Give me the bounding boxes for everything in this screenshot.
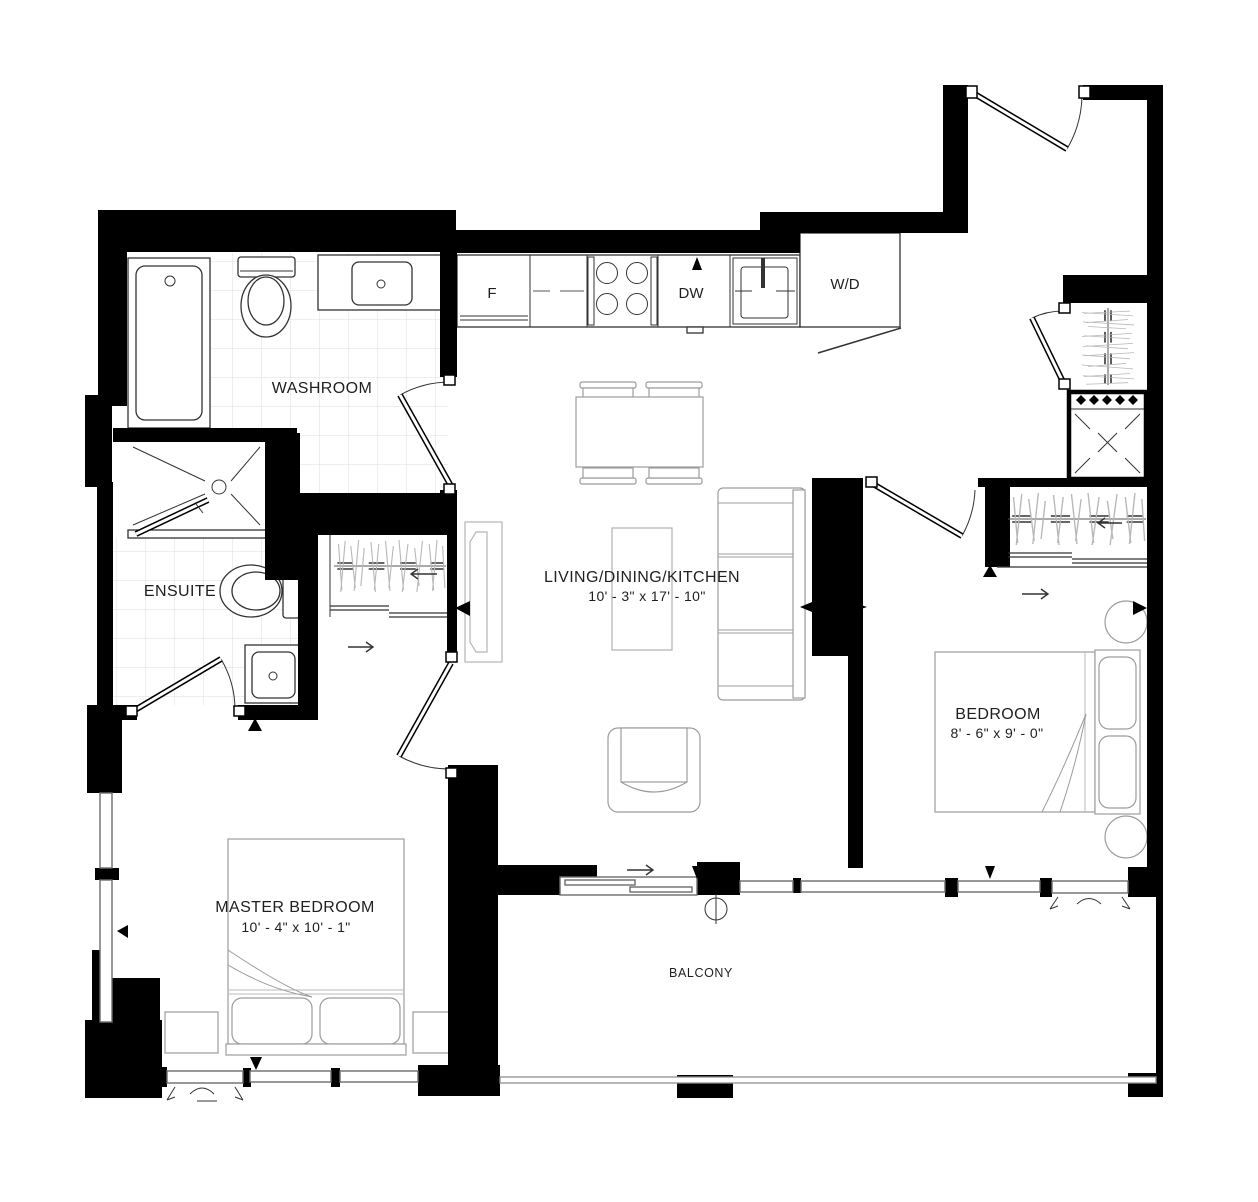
washroom-toilet bbox=[238, 257, 295, 337]
bedroom-dimensions: 8' - 6" x 9' - 0" bbox=[951, 725, 1044, 741]
washer-dryer-label: W/D bbox=[830, 276, 859, 293]
balcony-sliding-door bbox=[560, 877, 697, 895]
balcony-label: BALCONY bbox=[669, 966, 733, 980]
floor-plan-page: WASHROOM ENSUITE LIVING/DINING/KITCHEN 1… bbox=[0, 0, 1258, 1202]
floor-plan: WASHROOM ENSUITE LIVING/DINING/KITCHEN 1… bbox=[0, 0, 1258, 1202]
entry-coat-closet bbox=[1082, 308, 1134, 385]
direction-arrow bbox=[627, 865, 653, 875]
master-side-table-left bbox=[165, 1012, 218, 1053]
bathtub bbox=[128, 258, 210, 428]
shower bbox=[128, 442, 266, 538]
master-bed bbox=[226, 839, 406, 1055]
entry-door bbox=[966, 86, 1090, 149]
washroom-label: WASHROOM bbox=[272, 380, 372, 397]
direction-arrow bbox=[411, 569, 437, 579]
ensuite-sink bbox=[245, 645, 302, 703]
dishwasher bbox=[687, 327, 703, 333]
living-label: LIVING/DINING/KITCHEN bbox=[544, 569, 740, 586]
master-dimensions: 10' - 4" x 10' - 1" bbox=[241, 919, 350, 935]
master-closet bbox=[330, 535, 447, 617]
bedroom-label: BEDROOM bbox=[955, 706, 1040, 723]
direction-arrow bbox=[1022, 589, 1048, 599]
fridge-label: F bbox=[487, 285, 496, 302]
washer-dryer-closet bbox=[800, 233, 901, 353]
living-dimensions: 10' - 3" x 17' - 10" bbox=[588, 588, 705, 604]
balcony-railing bbox=[500, 1077, 1156, 1083]
direction-arrow bbox=[348, 642, 373, 652]
armchair bbox=[608, 728, 700, 812]
master-label: MASTER BEDROOM bbox=[215, 899, 374, 916]
sofa bbox=[718, 488, 805, 700]
coat-closet-door bbox=[1032, 303, 1070, 389]
utility-closet bbox=[1069, 392, 1146, 479]
master-bedroom-door bbox=[399, 652, 457, 778]
ensuite-label: ENSUITE bbox=[144, 583, 216, 600]
bedroom-door bbox=[866, 477, 975, 536]
balcony-door-handle-icon bbox=[705, 894, 727, 924]
washroom-vanity-sink bbox=[318, 255, 448, 310]
dining-table-set bbox=[576, 382, 703, 484]
bedroom-closet bbox=[997, 493, 1147, 567]
bedroom-side-table-bottom bbox=[1105, 816, 1147, 858]
tv-console bbox=[465, 522, 502, 662]
dishwasher-label: DW bbox=[679, 285, 705, 302]
